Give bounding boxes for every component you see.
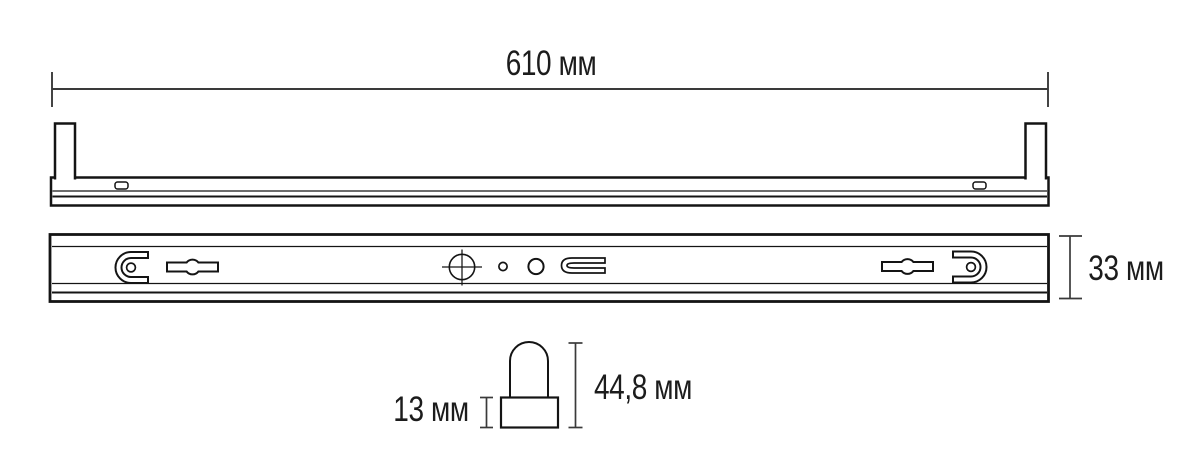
small-hole bbox=[499, 262, 507, 270]
medium-hole bbox=[528, 259, 543, 274]
side-view bbox=[51, 124, 1049, 206]
socket-dome bbox=[510, 342, 548, 397]
left-lampholder-hole bbox=[127, 263, 136, 272]
front-view bbox=[50, 235, 1049, 302]
right-lampholder-hole bbox=[967, 263, 976, 272]
technical-drawing: 610 мм 33 мм 13 мм 44,8 мм bbox=[0, 0, 1200, 469]
right-clip bbox=[973, 182, 986, 189]
right-mounting-tab bbox=[1026, 124, 1047, 180]
height-dimension-label: 33 мм bbox=[1046, 251, 1200, 286]
left-clip bbox=[115, 182, 128, 189]
left-keyhole-slot bbox=[167, 260, 218, 275]
socket-total-height-label: 44,8 мм bbox=[563, 370, 723, 405]
left-mounting-tab bbox=[55, 124, 75, 180]
right-keyhole-slot bbox=[882, 259, 933, 274]
length-dimension-label: 610 мм bbox=[471, 46, 631, 81]
socket-base-height-label: 13 мм bbox=[351, 392, 511, 427]
